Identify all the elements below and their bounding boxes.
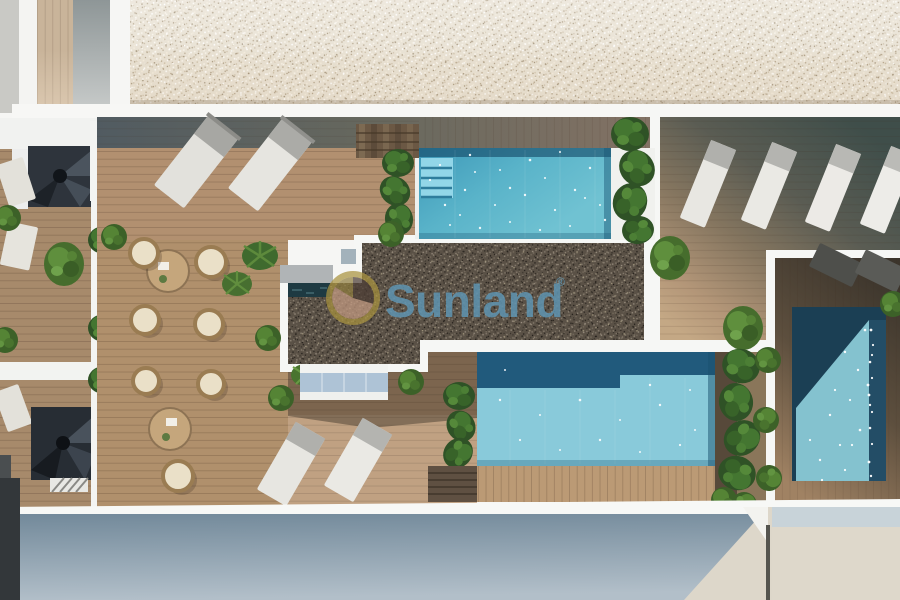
svg-text:Sunland: Sunland <box>385 275 563 327</box>
svg-text:®: ® <box>556 275 565 289</box>
